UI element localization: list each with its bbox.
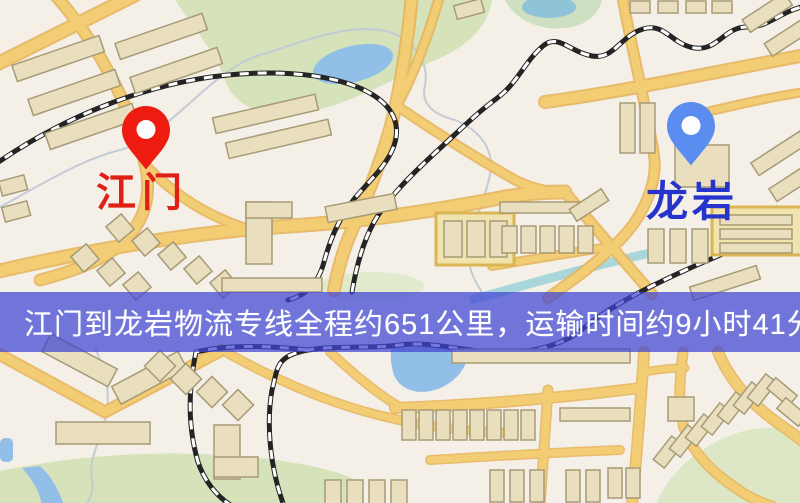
route-info-banner: 江门到龙岩物流专线全程约651公里，运输时间约9小时41分钟. bbox=[0, 292, 800, 352]
map-background bbox=[0, 0, 800, 503]
route-info-text: 江门到龙岩物流专线全程约651公里，运输时间约9小时41分钟. bbox=[24, 301, 800, 343]
map-screenshot: 江门 龙岩 江门到龙岩物流专线全程约651公里，运输时间约9小时41分钟. bbox=[0, 0, 800, 503]
